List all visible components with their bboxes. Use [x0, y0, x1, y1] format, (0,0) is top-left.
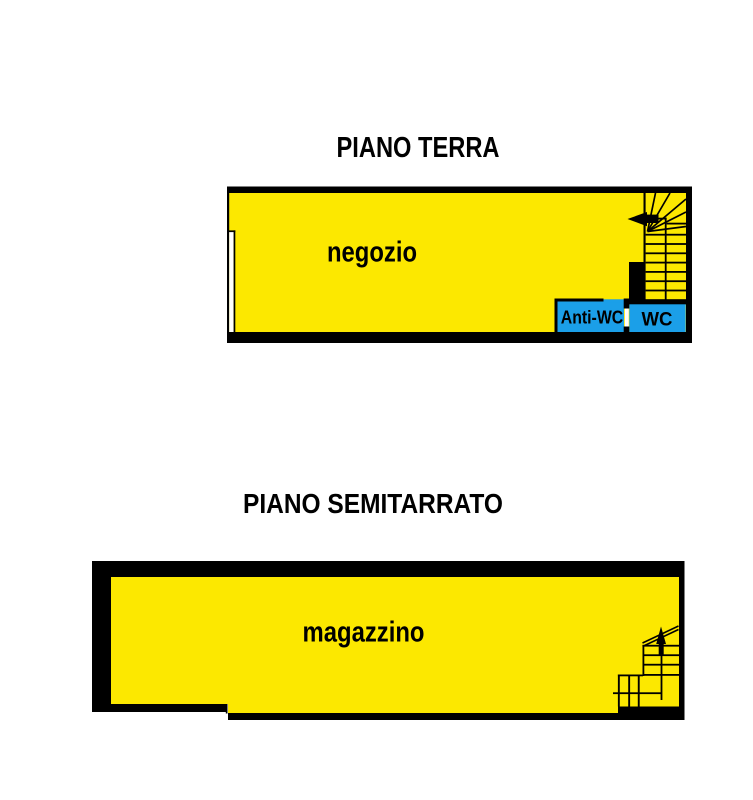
svg-text:PIANO TERRA: PIANO TERRA [337, 132, 500, 164]
svg-text:negozio: negozio [327, 237, 417, 269]
svg-text:PIANO SEMITARRATO: PIANO SEMITARRATO [243, 488, 503, 519]
svg-text:Anti-WC: Anti-WC [561, 308, 624, 328]
svg-text:magazzino: magazzino [303, 617, 425, 649]
svg-text:WC: WC [642, 309, 673, 331]
